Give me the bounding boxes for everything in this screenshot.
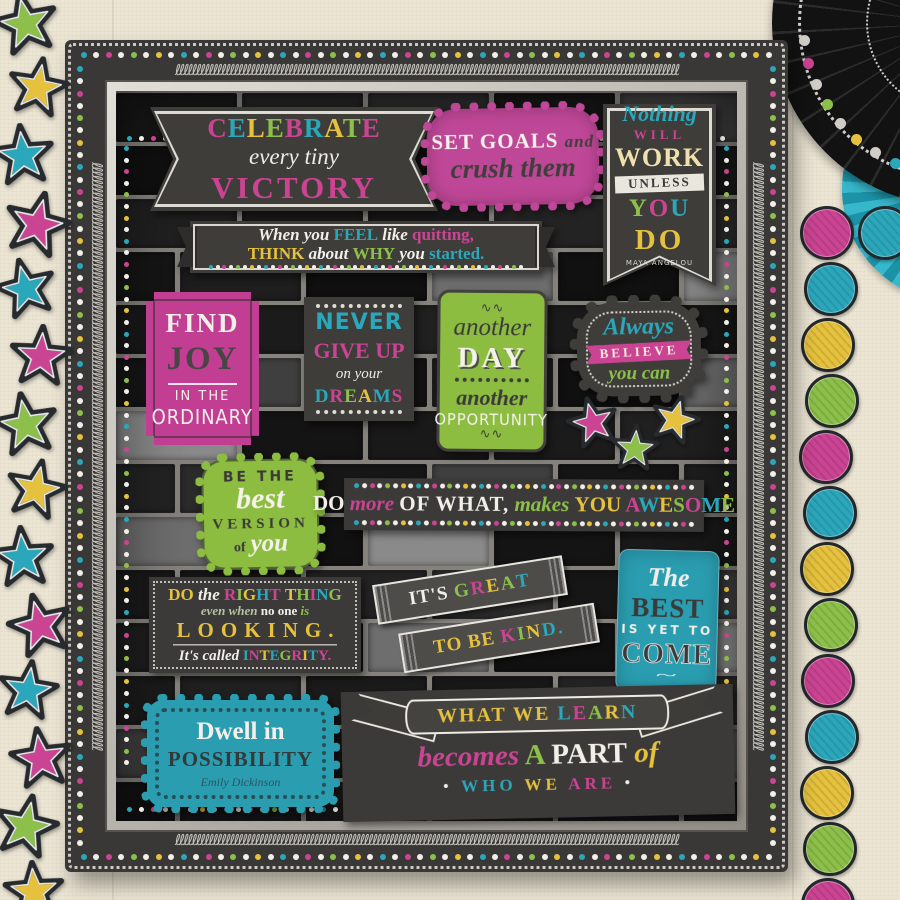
author-credit: MAYA ANGELOU — [626, 260, 693, 268]
dot — [424, 520, 429, 525]
dot — [724, 181, 729, 186]
dot — [124, 332, 129, 337]
divider-line — [168, 383, 236, 385]
dot — [770, 533, 776, 539]
dot — [222, 265, 226, 269]
dotted-rule — [316, 410, 402, 414]
quote-word: W — [638, 493, 659, 517]
dot — [724, 343, 729, 348]
dot — [541, 484, 546, 489]
dot — [642, 485, 647, 490]
dot — [770, 275, 776, 281]
dot — [654, 854, 660, 860]
quote-line: DO — [635, 224, 685, 256]
quote-word: N — [621, 701, 638, 724]
dot — [353, 265, 357, 269]
dot — [770, 520, 776, 526]
dot — [405, 52, 411, 58]
quote-card-what-we-learn: WHAT WE LEARN becomes A PART of • WHO WE… — [341, 684, 736, 822]
dot — [770, 324, 776, 330]
dot — [554, 52, 560, 58]
dot — [533, 484, 538, 489]
dot — [724, 668, 729, 673]
dot — [572, 484, 577, 489]
dot — [447, 521, 452, 526]
dot — [770, 373, 776, 379]
banner-dot-row — [209, 265, 524, 269]
wall-dot-column — [124, 146, 129, 766]
dot — [724, 645, 729, 650]
dot — [143, 52, 149, 58]
dot — [284, 265, 288, 269]
quote-word: G — [280, 648, 292, 664]
dot — [691, 854, 697, 860]
dot — [770, 152, 776, 158]
dot — [362, 483, 367, 488]
dot — [293, 854, 299, 860]
dot — [430, 854, 436, 860]
quote-line: CELEBRATE — [207, 113, 381, 143]
dot — [770, 299, 776, 305]
dot — [77, 447, 83, 453]
dot — [770, 312, 776, 318]
dot — [724, 610, 729, 615]
dot — [77, 496, 83, 502]
dot — [81, 52, 87, 58]
dot — [770, 213, 776, 219]
pennant-content: Nothing WILL WORK UNLESS YOU DO MAYA ANG… — [609, 112, 710, 258]
quote-word: IT'S — [407, 582, 455, 610]
dot — [124, 239, 129, 244]
dot — [77, 508, 83, 514]
dot — [124, 343, 129, 348]
dot — [77, 361, 83, 367]
dot — [835, 118, 846, 129]
quote-word: R — [304, 113, 325, 143]
dot — [650, 485, 655, 490]
dot — [618, 521, 623, 526]
dot — [770, 250, 776, 256]
dot — [724, 529, 729, 534]
dot — [355, 854, 361, 860]
dot — [616, 854, 622, 860]
dot — [77, 177, 83, 183]
dot — [724, 250, 729, 255]
dot — [724, 471, 729, 476]
dot — [224, 807, 229, 812]
quote-word: T — [269, 585, 280, 604]
dot — [486, 484, 491, 489]
dot — [564, 484, 569, 489]
dot — [634, 522, 639, 527]
dot — [243, 854, 249, 860]
dot — [464, 265, 468, 269]
dot — [681, 522, 686, 527]
dot — [367, 265, 371, 269]
dot — [408, 520, 413, 525]
dot — [770, 729, 776, 735]
dot — [417, 52, 423, 58]
dot — [603, 521, 608, 526]
quote-word: Y — [629, 195, 649, 222]
dot — [243, 265, 247, 269]
dot — [799, 35, 810, 46]
dot — [724, 424, 729, 429]
dot — [124, 227, 129, 232]
dot — [124, 297, 129, 302]
dot — [724, 378, 729, 383]
dot — [603, 484, 608, 489]
dot — [770, 103, 776, 109]
dot — [424, 483, 429, 488]
dot — [124, 703, 129, 708]
circle-icon — [801, 318, 855, 372]
dot — [494, 521, 499, 526]
dot — [770, 398, 776, 404]
dot — [212, 807, 217, 812]
quote-word: WHO — [461, 776, 525, 796]
dot — [268, 854, 274, 860]
dot — [124, 656, 129, 661]
star-icon — [0, 522, 59, 594]
dot — [492, 854, 498, 860]
circle-icon — [801, 878, 855, 900]
dot — [124, 587, 129, 592]
quote-word: started. — [429, 244, 484, 263]
dot — [77, 127, 83, 133]
dot — [77, 66, 83, 72]
dot — [724, 158, 729, 163]
dot — [681, 485, 686, 490]
dot — [124, 610, 129, 615]
star-icon — [0, 452, 74, 528]
dot — [77, 520, 83, 526]
dot — [168, 52, 174, 58]
dot — [673, 485, 678, 490]
dot — [673, 522, 678, 527]
dot — [106, 52, 112, 58]
dot — [588, 484, 593, 489]
star-icon — [0, 655, 64, 727]
dot — [491, 265, 495, 269]
dot — [770, 385, 776, 391]
quote-card-the-best: The BEST IS YET TO COME ~ — [615, 549, 720, 694]
dot — [139, 136, 144, 141]
quote-word: E — [228, 113, 247, 143]
dot — [592, 854, 598, 860]
dot — [77, 385, 83, 391]
dot — [770, 680, 776, 686]
dot — [77, 140, 83, 146]
circle-icon — [800, 766, 854, 820]
dot — [124, 389, 129, 394]
quote-word: A — [588, 702, 605, 725]
dot — [479, 484, 484, 489]
quote-line: GIVE UP — [313, 339, 404, 364]
dot — [770, 705, 776, 711]
quote-line: another — [453, 313, 531, 342]
dot — [268, 52, 274, 58]
dot — [770, 410, 776, 416]
quote-word: R — [224, 585, 236, 604]
dot — [724, 227, 729, 232]
dot — [124, 714, 129, 719]
quote-line: POSSIBILITY — [168, 748, 313, 772]
dot — [355, 52, 361, 58]
dot — [255, 52, 261, 58]
dot — [770, 643, 776, 649]
dot — [393, 483, 398, 488]
dot — [533, 521, 538, 526]
dot — [243, 52, 249, 58]
dot — [218, 854, 224, 860]
dot — [770, 606, 776, 612]
brick — [620, 411, 737, 460]
dot — [124, 424, 129, 429]
dot — [679, 52, 685, 58]
dot — [77, 570, 83, 576]
circle-icon — [799, 430, 853, 484]
quote-word: quitting, — [412, 225, 474, 244]
dot — [724, 274, 729, 279]
quote-word: PART — [551, 737, 627, 771]
dot — [724, 320, 729, 325]
dot — [716, 52, 722, 58]
dot — [549, 484, 554, 489]
dot — [679, 854, 685, 860]
quote-card-nothing-works: Nothing WILL WORK UNLESS YOU DO MAYA ANG… — [603, 104, 716, 286]
dot — [556, 484, 561, 489]
quote-line: another — [456, 386, 527, 411]
dot — [370, 483, 375, 488]
dot — [417, 854, 423, 860]
dot — [255, 854, 261, 860]
dot — [724, 389, 729, 394]
quote-line: even when no one is — [201, 604, 309, 619]
quote-card-do-more: DO more OF WHAT, makes YOU AWESOME — [344, 478, 704, 532]
dot — [629, 854, 635, 860]
dot — [471, 521, 476, 526]
dot — [297, 807, 302, 812]
quote-word: L — [247, 113, 266, 143]
quote-card-kind: IT'S GREAT TO BE KIND. — [372, 560, 598, 664]
quote-line: IN THE — [175, 390, 231, 405]
dot — [770, 570, 776, 576]
dot — [218, 52, 224, 58]
quote-word: • — [443, 777, 462, 796]
dot — [77, 840, 83, 846]
dot — [77, 201, 83, 207]
quote-word: D — [315, 386, 330, 407]
dot — [326, 265, 330, 269]
quote-word: WE — [524, 775, 568, 795]
dot — [77, 766, 83, 772]
dot — [525, 484, 530, 489]
dot — [542, 854, 548, 860]
dot — [616, 52, 622, 58]
quote-word: R — [291, 648, 302, 664]
dot — [592, 52, 598, 58]
dot — [124, 760, 129, 765]
dot — [567, 854, 573, 860]
dot — [393, 520, 398, 525]
dot — [512, 265, 516, 269]
quote-word: FEEL — [334, 225, 378, 244]
dot — [77, 791, 83, 797]
dot — [124, 691, 129, 696]
quote-line: on your — [336, 366, 382, 383]
dot — [193, 52, 199, 58]
dot — [724, 587, 729, 592]
dot — [770, 791, 776, 797]
dot — [486, 521, 491, 526]
quote-word: OF WHAT, — [399, 492, 509, 517]
dot — [724, 563, 729, 568]
dot — [77, 213, 83, 219]
quote-word: no one — [261, 603, 301, 618]
dot — [724, 540, 729, 545]
dot — [209, 265, 213, 269]
quote-word: T — [285, 585, 296, 604]
dot — [634, 485, 639, 490]
quote-card-another-day: ∿∿ another DAY another OPPORTUNITY ∿∿ — [436, 290, 547, 453]
rosette-fan-icon — [772, 0, 900, 206]
dot — [480, 52, 486, 58]
dot — [248, 807, 253, 812]
dot — [770, 78, 776, 84]
dot — [236, 265, 240, 269]
quote-word: When you — [258, 225, 334, 244]
dot — [770, 594, 776, 600]
quote-word: N — [316, 585, 328, 604]
star-icon — [0, 858, 68, 900]
dot — [770, 471, 776, 477]
dot — [77, 422, 83, 428]
dot — [124, 447, 129, 452]
dot — [770, 226, 776, 232]
quote-line: OPPORTUNITY — [435, 410, 548, 429]
dot — [401, 520, 406, 525]
quote-line: WORK — [615, 143, 704, 172]
dot — [131, 854, 137, 860]
dot — [93, 52, 99, 58]
dot — [156, 52, 162, 58]
quote-line: DREAMS — [315, 386, 403, 407]
dot — [250, 265, 254, 269]
dot — [510, 521, 515, 526]
dot — [626, 522, 631, 527]
dot — [77, 434, 83, 440]
dot — [77, 705, 83, 711]
quote-line: of you — [234, 532, 289, 558]
dot — [471, 265, 475, 269]
dot — [309, 807, 314, 812]
dot — [770, 484, 776, 490]
quote-word: G — [328, 585, 341, 604]
quote-word: YOU — [574, 492, 625, 516]
dot — [447, 484, 452, 489]
dot — [642, 522, 647, 527]
quote-card-find-joy: FIND JOY IN THE ORDINARY — [146, 292, 259, 445]
dot — [124, 378, 129, 383]
star-icon — [0, 250, 65, 328]
dot — [124, 633, 129, 638]
dot — [724, 355, 729, 360]
circle-icon — [804, 262, 858, 316]
dot — [118, 854, 124, 860]
dot — [343, 52, 349, 58]
quote-line: WILL — [634, 128, 685, 143]
dot — [77, 692, 83, 698]
dot — [321, 807, 326, 812]
dot — [770, 631, 776, 637]
dot — [312, 265, 316, 269]
dot — [440, 484, 445, 489]
dot — [770, 66, 776, 72]
dot — [124, 320, 129, 325]
dotted-rule — [454, 378, 529, 383]
dot — [770, 582, 776, 588]
dot — [504, 854, 510, 860]
quote-card-quitting: When you FEEL like quitting, THINK about… — [190, 221, 542, 273]
dot — [619, 484, 624, 489]
dot — [77, 78, 83, 84]
quote-word: E — [266, 113, 285, 143]
dot — [502, 484, 507, 489]
dot — [188, 807, 193, 812]
quote-word: becomes — [417, 739, 519, 773]
dot — [529, 52, 535, 58]
dot — [343, 854, 349, 860]
quote-word: of — [234, 540, 246, 556]
quote-word: M — [701, 493, 721, 517]
dot — [770, 140, 776, 146]
dot — [604, 52, 610, 58]
dot — [770, 496, 776, 502]
dot — [851, 134, 862, 145]
banner-content: When you FEEL like quitting, THINK about… — [193, 224, 539, 270]
dot — [724, 204, 729, 209]
quote-word: about — [304, 244, 352, 263]
quote-word: R — [330, 386, 345, 407]
author-credit: Emily Dickinson — [201, 776, 281, 789]
quote-word: more — [344, 491, 399, 515]
quote-word: U — [670, 195, 690, 222]
dot — [409, 483, 414, 488]
dot — [124, 737, 129, 742]
dot — [724, 297, 729, 302]
quote-word: H — [296, 585, 309, 604]
quote-word: TO BE — [432, 627, 502, 659]
dot — [595, 521, 600, 526]
dot — [77, 164, 83, 170]
dot — [124, 726, 129, 731]
dot — [720, 136, 725, 141]
dot — [770, 177, 776, 183]
dot — [77, 238, 83, 244]
dot — [567, 52, 573, 58]
dot — [127, 807, 132, 812]
dot — [236, 807, 241, 812]
dot — [330, 854, 336, 860]
quote-line: DAY — [457, 341, 526, 374]
doodle-loops: ℓℓℓℓℓℓℓℓℓℓℓℓℓℓℓℓℓℓℓℓℓℓℓℓℓℓℓℓℓℓℓℓℓℓℓℓℓℓℓℓ… — [91, 833, 762, 849]
dot — [415, 265, 419, 269]
dot — [870, 147, 881, 158]
dot — [724, 192, 729, 197]
quote-word: C — [207, 113, 228, 143]
dot — [151, 807, 156, 812]
